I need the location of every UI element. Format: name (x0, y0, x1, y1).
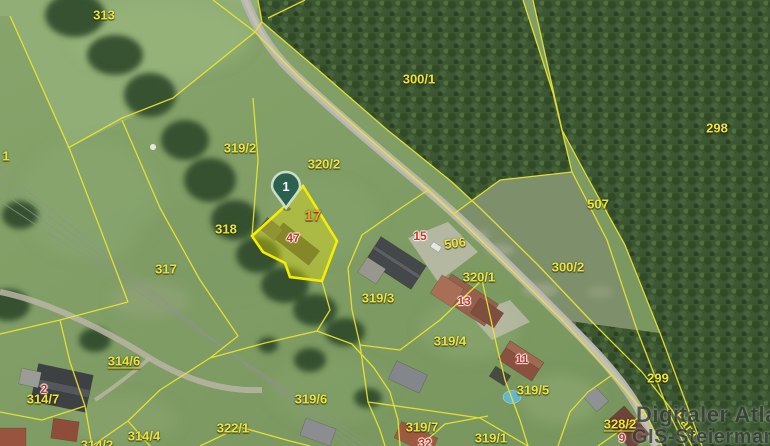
parcel-label-319-5: 319/5 (517, 383, 550, 398)
parcel-label-318: 318 (215, 222, 237, 237)
house-number-2: 2 (41, 382, 48, 396)
parcel-label-319-4: 319/4 (434, 334, 467, 349)
label-layer: 313 300/1 298 319/2 320/2 507 318 317 50… (0, 0, 770, 446)
parcel-label-320-1: 320/1 (463, 270, 496, 285)
parcel-label-300-1: 300/1 (403, 72, 436, 87)
house-number-32: 32 (418, 436, 431, 446)
parcel-label-313: 313 (93, 8, 115, 23)
parcel-label-317: 317 (155, 262, 177, 277)
house-number-9: 9 (619, 431, 626, 445)
house-number-11: 11 (516, 352, 529, 366)
map-viewport[interactable]: 1 313 300/1 298 319/2 320/2 507 318 317 … (0, 0, 770, 446)
parcel-label-edge-1: 1 (2, 149, 9, 164)
house-number-47: 47 (286, 231, 299, 245)
parcel-label-300-2: 300/2 (552, 260, 585, 275)
watermark-title: Digitaler Atlas (636, 402, 770, 428)
parcel-label-322-1: 322/1 (217, 421, 250, 436)
parcel-label-319-3: 319/3 (362, 291, 395, 306)
parcel-label-298: 298 (706, 121, 728, 136)
parcel-label-319-7: 319/7 (406, 420, 439, 435)
parcel-label-314-2: 314/2 (81, 438, 114, 446)
parcel-label-319-2: 319/2 (224, 141, 257, 156)
parcel-label-507: 507 (587, 197, 609, 212)
parcel-label-17-selected: 17 (305, 208, 322, 225)
watermark-subtitle: GIS-Steiermark (632, 426, 770, 446)
parcel-label-320-2: 320/2 (308, 157, 341, 172)
parcel-label-314-6: 314/6 (108, 354, 141, 369)
parcel-label-319-6: 319/6 (295, 392, 328, 407)
house-number-13: 13 (457, 294, 470, 308)
parcel-label-314-4: 314/4 (128, 429, 161, 444)
house-number-15: 15 (413, 229, 426, 243)
parcel-label-319-1: 319/1 (475, 431, 508, 446)
parcel-label-506: 506 (443, 234, 467, 252)
parcel-label-299: 299 (647, 371, 669, 386)
